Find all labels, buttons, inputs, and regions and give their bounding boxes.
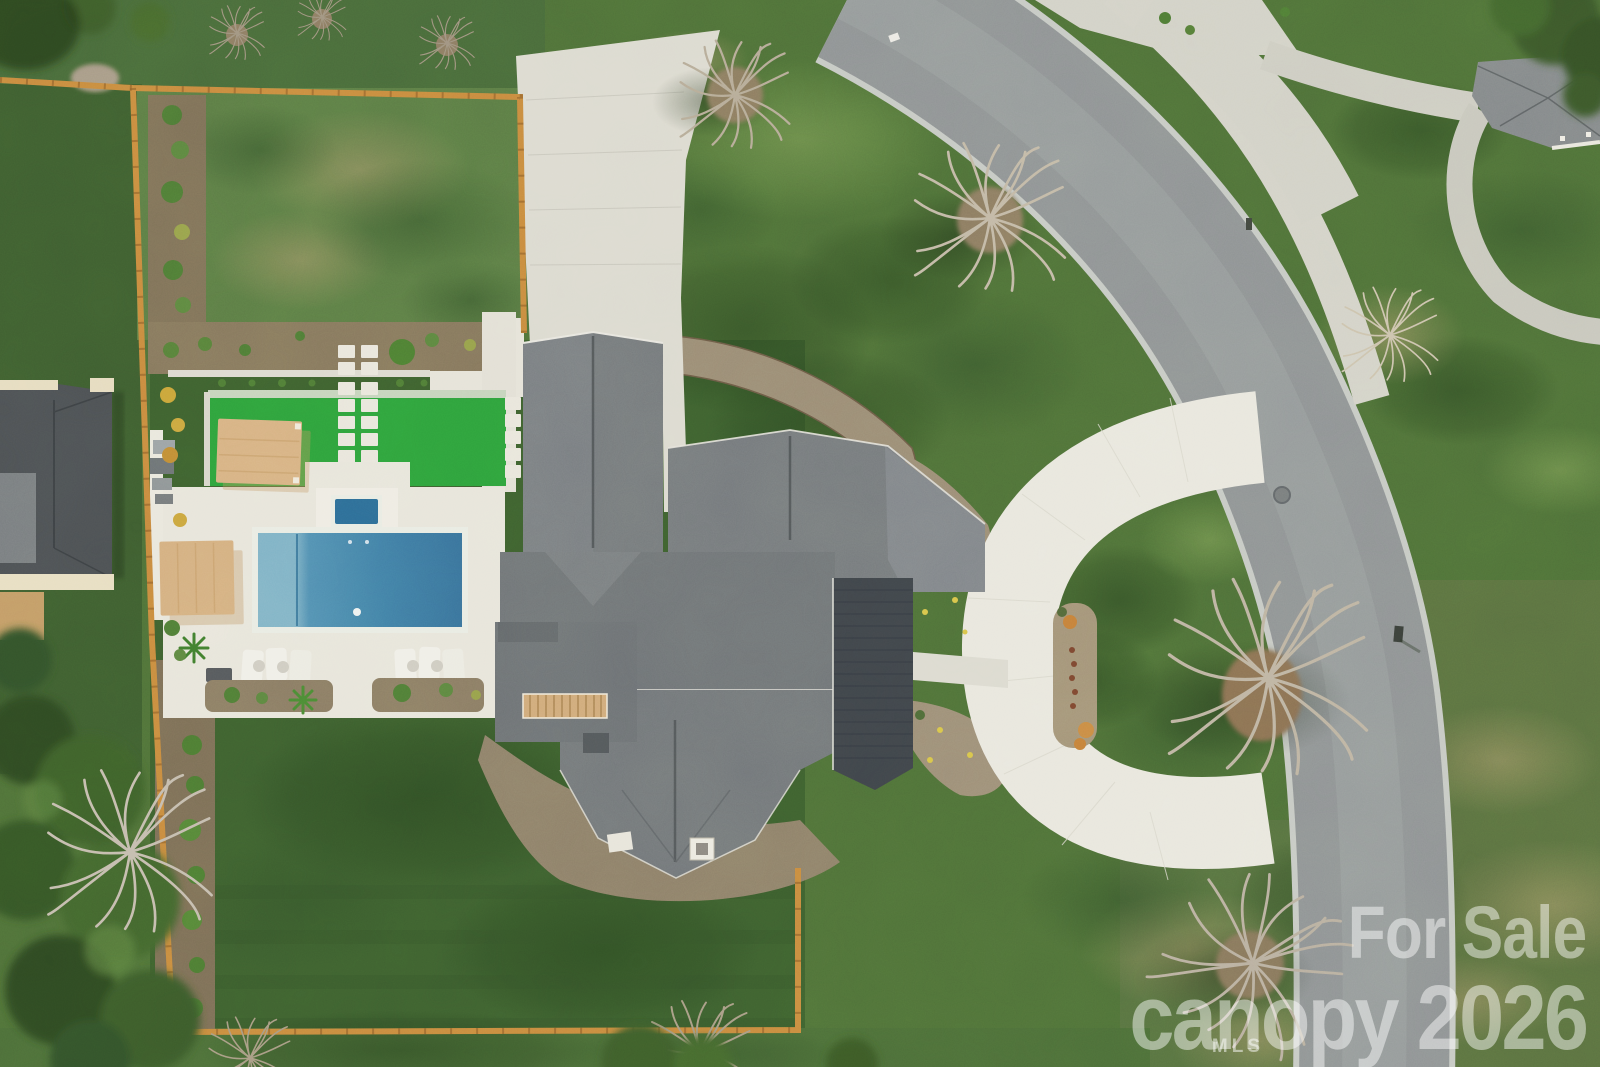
aerial-scene-svg <box>0 0 1600 1067</box>
photo-grain <box>0 0 1600 1067</box>
aerial-photo: For Sale canopy 2026 MLS <box>0 0 1600 1067</box>
